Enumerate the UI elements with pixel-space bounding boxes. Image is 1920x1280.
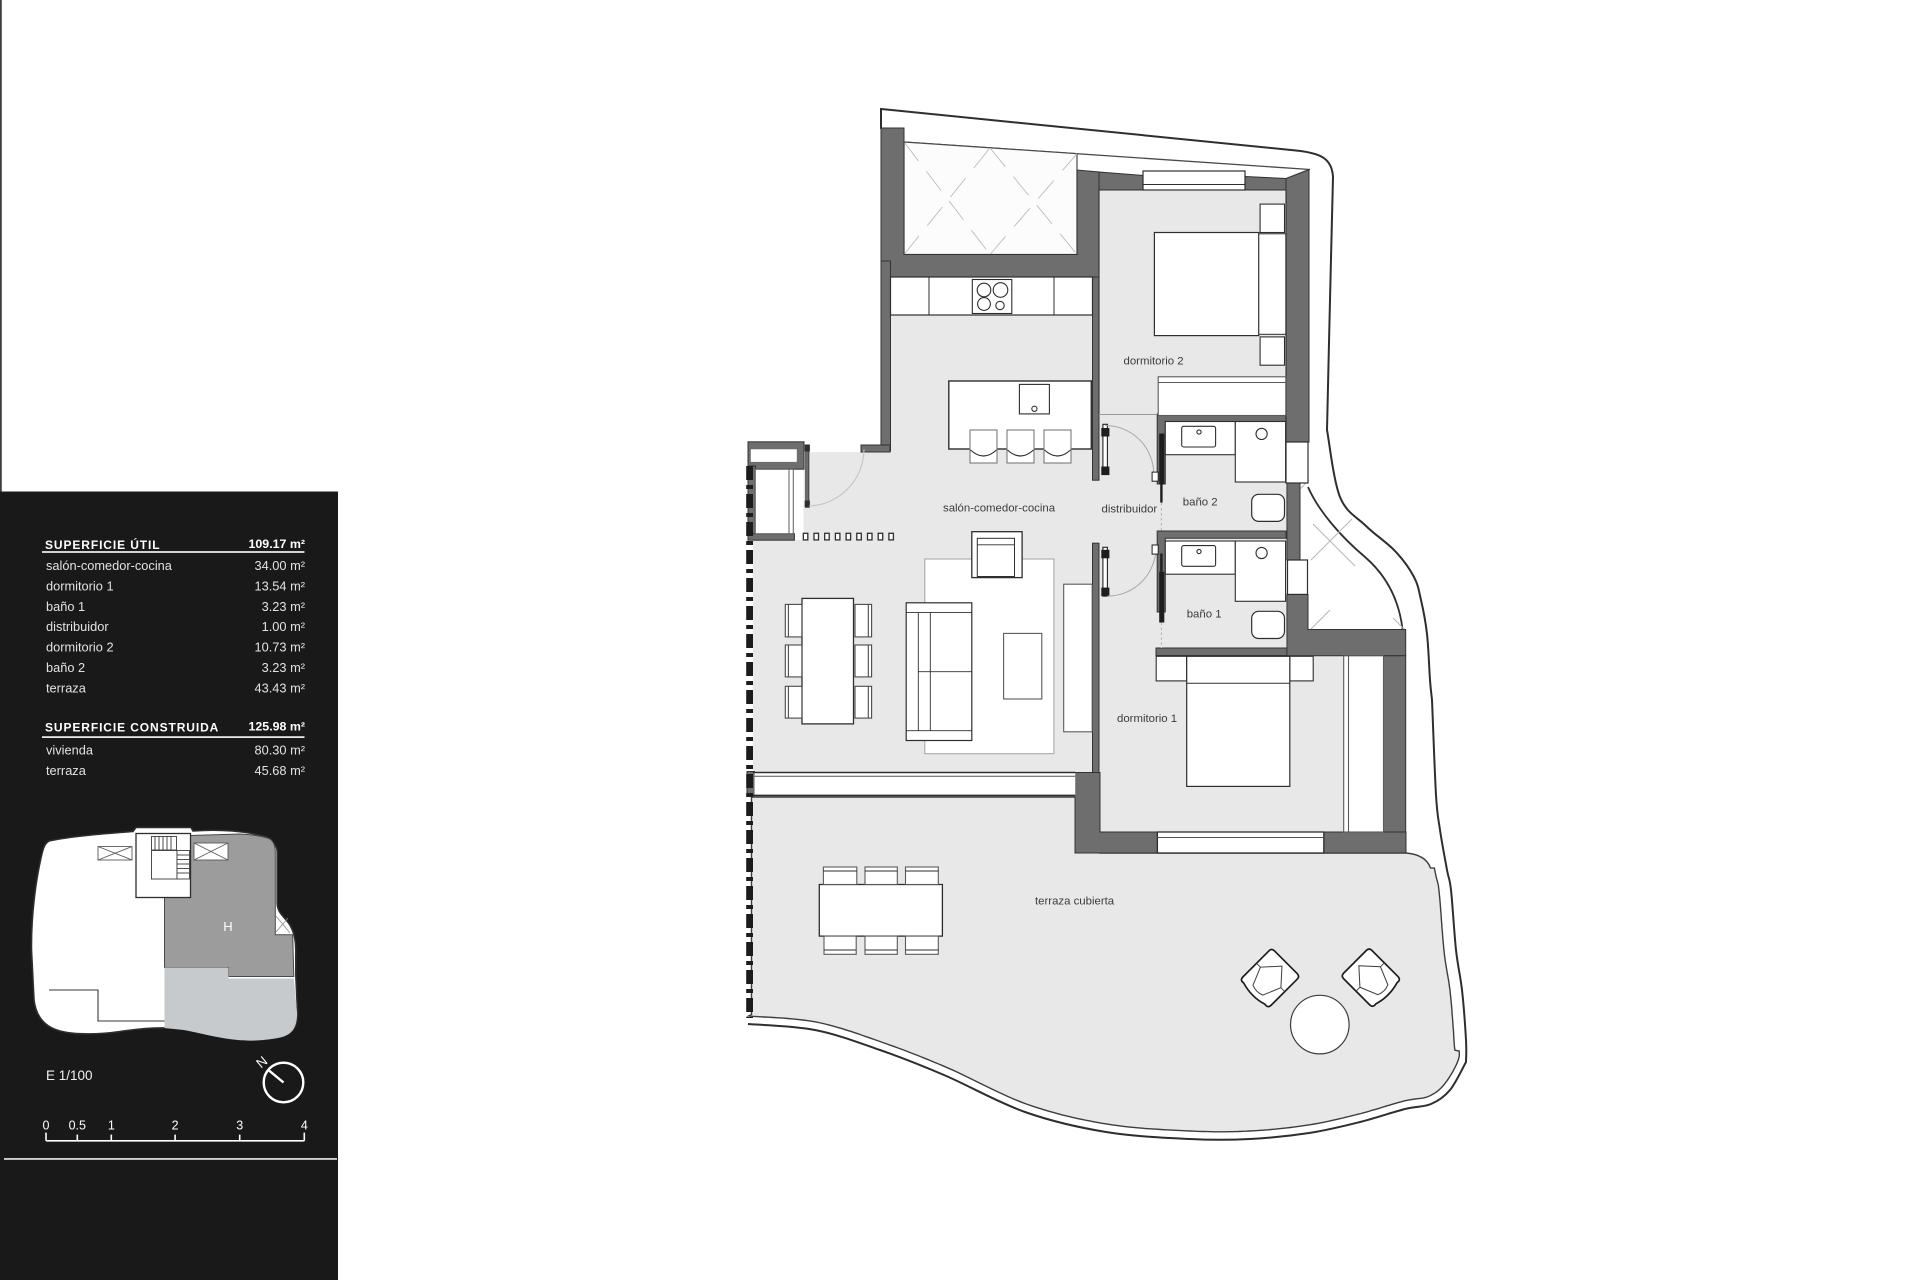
svg-text:distribuidor: distribuidor <box>46 619 109 634</box>
svg-text:3: 3 <box>236 1119 243 1133</box>
svg-text:34.00 m²: 34.00 m² <box>254 558 305 573</box>
svg-text:SUPERFICIE ÚTIL: SUPERFICIE ÚTIL <box>45 537 161 552</box>
svg-text:1: 1 <box>108 1119 115 1133</box>
svg-text:dormitorio 1: dormitorio 1 <box>46 578 114 593</box>
svg-text:45.68 m²: 45.68 m² <box>254 763 305 778</box>
svg-text:80.30 m²: 80.30 m² <box>254 742 305 757</box>
svg-text:3.23 m²: 3.23 m² <box>262 660 306 675</box>
svg-text:salón-comedor-cocina: salón-comedor-cocina <box>943 503 1056 515</box>
svg-text:dormitorio 2: dormitorio 2 <box>1124 356 1184 368</box>
svg-text:2: 2 <box>172 1119 179 1133</box>
svg-text:terraza cubierta: terraza cubierta <box>1035 896 1115 908</box>
svg-text:baño 1: baño 1 <box>1187 609 1222 621</box>
svg-text:10.73 m²: 10.73 m² <box>254 640 305 655</box>
svg-text:H: H <box>223 919 232 934</box>
svg-text:0.5: 0.5 <box>69 1119 86 1133</box>
svg-text:1.00 m²: 1.00 m² <box>262 619 306 634</box>
svg-text:3.23 m²: 3.23 m² <box>262 599 306 614</box>
svg-text:dormitorio 2: dormitorio 2 <box>46 640 114 655</box>
svg-text:baño 2: baño 2 <box>1183 497 1218 509</box>
svg-text:distribuidor: distribuidor <box>1102 504 1158 516</box>
svg-text:terraza: terraza <box>46 763 87 778</box>
svg-text:13.54 m²: 13.54 m² <box>254 578 305 593</box>
svg-text:salón-comedor-cocina: salón-comedor-cocina <box>46 558 173 573</box>
svg-text:baño 1: baño 1 <box>46 599 85 614</box>
svg-text:43.43 m²: 43.43 m² <box>254 680 305 695</box>
svg-text:4: 4 <box>301 1119 308 1133</box>
svg-text:109.17 m²: 109.17 m² <box>249 537 305 551</box>
svg-text:vivienda: vivienda <box>46 742 94 757</box>
svg-text:0: 0 <box>43 1119 50 1133</box>
svg-text:dormitorio 1: dormitorio 1 <box>1117 713 1177 725</box>
svg-text:baño 2: baño 2 <box>46 660 85 675</box>
svg-text:SUPERFICIE CONSTRUIDA: SUPERFICIE CONSTRUIDA <box>45 721 219 735</box>
svg-text:125.98 m²: 125.98 m² <box>249 720 305 734</box>
svg-text:E 1/100: E 1/100 <box>46 1068 93 1083</box>
svg-text:terraza: terraza <box>46 680 87 695</box>
